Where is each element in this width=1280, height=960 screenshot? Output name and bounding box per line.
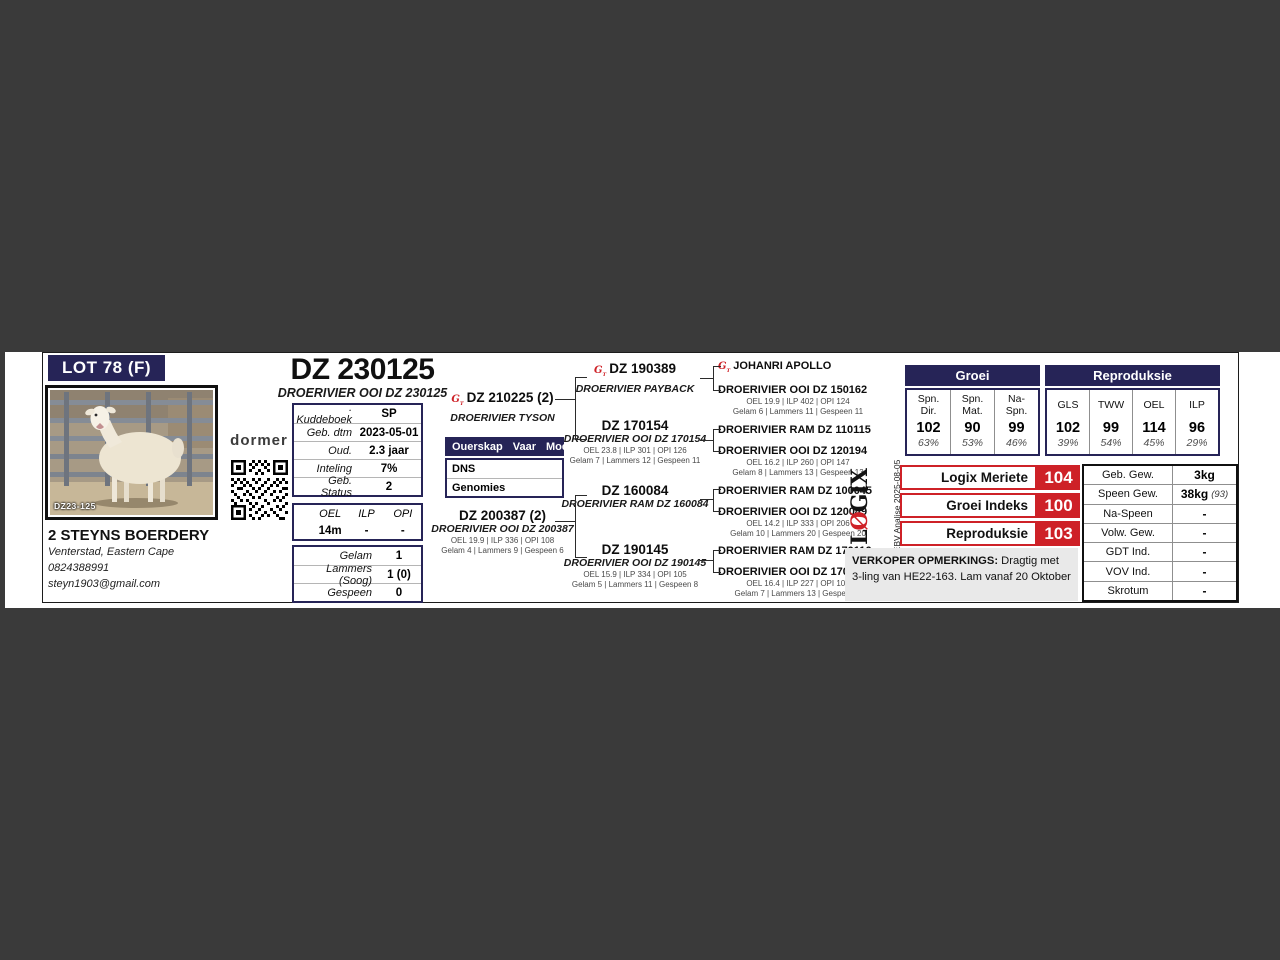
ebv-cell: GLS10239% — [1047, 390, 1089, 454]
pedigree-connector — [713, 429, 721, 430]
pedigree-connector — [700, 440, 713, 441]
table-row: Lammers (Soog)1 (0) — [294, 565, 421, 583]
ebv-cell: TWW9954% — [1089, 390, 1132, 454]
pedigree-great-grandparent: DROERIVIER RAM DZ 110115 — [718, 424, 871, 437]
pedigree-connector — [713, 550, 714, 572]
pedigree-grandparent: DZ 160084 DROERIVIER RAM DZ 160084 — [540, 483, 730, 511]
ebv-group-reproduksie-header: Reproduksie — [1045, 365, 1220, 386]
table-row: VOV Ind.- — [1084, 561, 1236, 580]
ebv-cell: Spn. Mat.9053% — [950, 390, 994, 454]
table-row: OEL ILP OPI — [294, 505, 421, 522]
index-value-badge: 103 — [1037, 521, 1080, 546]
table-row: GDT Ind.- — [1084, 542, 1236, 561]
table-row: Gespeen0 — [294, 583, 421, 601]
pedigree-great-grandparent: GTJOHANRI APOLLO — [718, 360, 831, 378]
pedigree-connector — [700, 378, 713, 379]
pedigree-connector — [713, 429, 714, 452]
table-row: . KuddeboekSP — [294, 405, 421, 423]
pedigree-connector — [575, 377, 587, 378]
table-row: Speen Gew.38kg(93) — [1084, 484, 1236, 503]
pedigree-connector — [713, 550, 721, 551]
logix-meriete-indeks: Logix Meriete Indeks 104 — [900, 465, 1080, 490]
pedigree-connector — [713, 451, 721, 452]
breeder-name: 2 STEYNS BOERDERY — [48, 527, 268, 544]
pedigree-connector — [713, 366, 714, 391]
pedigree-connector — [713, 366, 721, 367]
pedigree-great-grandparent: DROERIVIER OOI DZ 150162 OEL 19.9 | ILP … — [718, 384, 878, 417]
sheep-photo-illustration — [50, 390, 213, 515]
pedigree-connector — [700, 560, 713, 561]
pedigree-connector — [713, 489, 714, 511]
animal-id-title: DZ 230125 — [235, 354, 490, 386]
genotyped-icon: GT — [594, 365, 606, 376]
breeder-location: Venterstad, Eastern Cape — [48, 545, 268, 560]
catalog-page: LOT 78 (F) — [5, 352, 1280, 608]
ebv-table-reproduksie: GLS10239% TWW9954% OEL11445% ILP9629% — [1045, 388, 1220, 456]
breeder-email: steyn1903@gmail.com — [48, 577, 268, 592]
pedigree-connector — [575, 377, 576, 439]
table-row: 14m - - — [294, 522, 421, 539]
pedigree-connector — [555, 521, 575, 522]
lot-badge: LOT 78 (F) — [48, 355, 165, 381]
pedigree-grandparent: DZ 190145 DROERIVIER OOI DZ 190145 OEL 1… — [540, 542, 730, 590]
reproduksie-indeks: Reproduksie Indeks 103 — [900, 521, 1080, 546]
ebv-cell: Na- Spn.9946% — [994, 390, 1038, 454]
oel-ilp-opi-table: OEL ILP OPI 14m - - — [292, 503, 423, 541]
index-value-badge: 100 — [1037, 493, 1080, 518]
ebv-group-groei-header: Groei — [905, 365, 1040, 386]
breeder-info: 2 STEYNS BOERDERY Venterstad, Eastern Ca… — [48, 527, 268, 592]
weights-table: Geb. Gew.3kg Speen Gew.38kg(93) Na-Speen… — [1082, 464, 1238, 602]
index-value-badge: 104 — [1037, 465, 1080, 490]
pedigree-connector — [713, 511, 721, 512]
groei-indeks: Groei Indeks 100 — [900, 493, 1080, 518]
table-row: Geb. Gew.3kg — [1084, 466, 1236, 484]
logix-logo: LØGIX EBV Analise 2025-08-05 — [839, 456, 895, 556]
table-row: Na-Speen- — [1084, 504, 1236, 523]
seller-remarks: VERKOPER OPMERKINGS: Dragtig met 3-ling … — [845, 548, 1078, 601]
pedigree-connector — [713, 489, 721, 490]
genotyped-icon: GT — [451, 394, 463, 405]
pedigree-grandparent: DZ 170154 DROERIVIER OOI DZ 170154 OEL 2… — [540, 418, 730, 466]
pedigree-connector — [575, 495, 576, 557]
pedigree-connector — [555, 399, 575, 400]
pedigree-connector — [575, 495, 587, 496]
ebv-cell: Spn. Dir.10263% — [907, 390, 950, 454]
pedigree-connector — [700, 499, 713, 500]
dormer-logo: dormer — [228, 432, 290, 449]
photo-id-tag: DZ23-125 — [54, 501, 96, 511]
animal-photo: DZ23-125 — [45, 385, 218, 520]
animal-info-table: . KuddeboekSP Geb. dtm2023-05-01 Oud.2.3… — [292, 403, 423, 497]
ebv-table-groei: Spn. Dir.10263% Spn. Mat.9053% Na- Spn.9… — [905, 388, 1040, 456]
qr-code — [231, 460, 288, 520]
pedigree-connector — [575, 557, 587, 558]
table-row: Geb. Status2 — [294, 477, 421, 495]
pedigree-connector — [713, 572, 721, 573]
pedigree-connector — [575, 439, 587, 440]
lambing-table: Gelam1 Lammers (Soog)1 (0) Gespeen0 — [292, 545, 423, 603]
ebv-cell: OEL11445% — [1132, 390, 1175, 454]
pedigree-connector — [713, 390, 721, 391]
logix-red-o: Ø — [847, 512, 873, 530]
remarks-title: VERKOPER OPMERKINGS: — [852, 555, 998, 567]
breeder-phone: 0824388991 — [48, 561, 268, 576]
ebv-cell: ILP9629% — [1175, 390, 1218, 454]
table-row: Oud.2.3 jaar — [294, 441, 421, 459]
table-row: Skrotum- — [1084, 581, 1236, 600]
table-row: Geb. dtm2023-05-01 — [294, 423, 421, 441]
table-row: Volw. Gew.- — [1084, 523, 1236, 542]
